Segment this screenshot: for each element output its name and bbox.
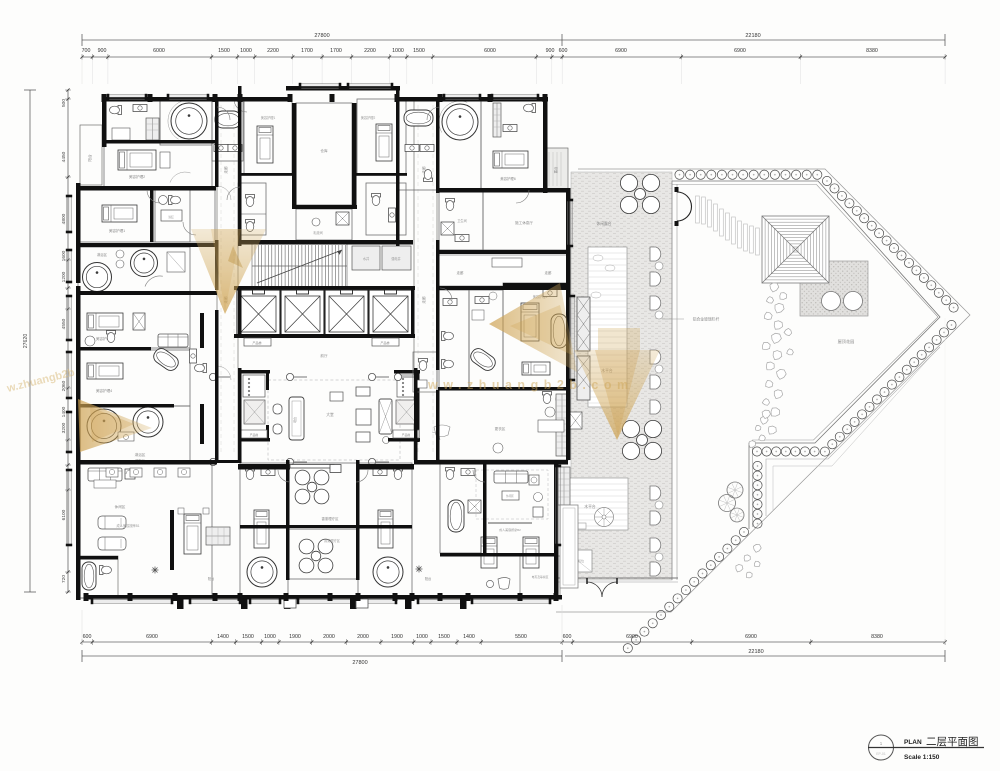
svg-text:22180: 22180: [745, 33, 760, 39]
svg-text:美容护理4: 美容护理4: [96, 388, 112, 393]
svg-text:美容护理1: 美容护理1: [109, 228, 125, 233]
svg-text:Scale 1:150: Scale 1:150: [904, 754, 940, 761]
svg-text:5500: 5500: [515, 634, 527, 640]
svg-text:27620: 27620: [23, 334, 29, 349]
svg-text:8380: 8380: [871, 634, 883, 640]
svg-text:600: 600: [563, 634, 572, 640]
svg-text:6000: 6000: [153, 48, 165, 54]
svg-text:走廊: 走廊: [457, 270, 464, 275]
svg-text:产品梯: 产品梯: [402, 433, 411, 437]
svg-text:1500: 1500: [218, 48, 230, 54]
svg-text:EP-01: EP-01: [876, 752, 886, 756]
svg-text:1400: 1400: [217, 634, 229, 640]
svg-text:6900: 6900: [615, 48, 627, 54]
svg-text:6900: 6900: [146, 634, 158, 640]
svg-text:阳台: 阳台: [87, 154, 92, 162]
svg-text:露台: 露台: [553, 166, 558, 173]
svg-text:1000: 1000: [240, 48, 252, 54]
svg-text:大堂: 大堂: [326, 412, 334, 417]
svg-text:铝合金玻璃栏杆: 铝合金玻璃栏杆: [693, 317, 720, 322]
svg-text:仓库: 仓库: [320, 148, 328, 153]
svg-text:1000: 1000: [264, 634, 276, 640]
svg-text:走廊: 走廊: [223, 166, 228, 174]
svg-text:产品梯: 产品梯: [252, 340, 261, 345]
svg-text:4450: 4450: [61, 151, 67, 162]
svg-text:屋顶花园: 屋顶花园: [838, 338, 855, 345]
svg-text:1700: 1700: [301, 48, 313, 54]
svg-text:2200: 2200: [364, 48, 376, 54]
svg-text:6000: 6000: [484, 48, 496, 54]
svg-text:香薰理疗区: 香薰理疗区: [324, 538, 341, 543]
svg-text:3200: 3200: [61, 422, 67, 433]
svg-text:木平台: 木平台: [584, 504, 596, 509]
svg-text:22180: 22180: [748, 649, 763, 655]
svg-text:成人美容按摩B2: 成人美容按摩B2: [499, 527, 521, 532]
svg-text:1400: 1400: [463, 634, 475, 640]
svg-text:强电井: 强电井: [391, 256, 401, 261]
svg-text:ww.zhuangb2b.com: ww.zhuangb2b.com: [427, 378, 634, 392]
svg-text:1900: 1900: [289, 634, 301, 640]
svg-text:6100: 6100: [61, 509, 67, 520]
svg-text:吧台: 吧台: [292, 417, 297, 423]
svg-text:6900: 6900: [745, 634, 757, 640]
svg-text:700: 700: [82, 48, 91, 54]
svg-text:浴缸: 浴缸: [168, 215, 174, 219]
svg-text:4800: 4800: [61, 213, 67, 224]
svg-text:乳液间: 乳液间: [313, 230, 323, 235]
svg-text:1200: 1200: [61, 271, 67, 282]
svg-text:PLAN: PLAN: [904, 739, 922, 746]
svg-text:阳台: 阳台: [425, 576, 431, 581]
svg-text:720: 720: [61, 575, 67, 583]
svg-text:休闲区: 休闲区: [115, 504, 126, 509]
svg-text:1500: 1500: [438, 634, 450, 640]
svg-text:香薰理疗区: 香薰理疗区: [322, 516, 340, 521]
svg-text:1900: 1900: [391, 634, 403, 640]
svg-text:6900: 6900: [626, 634, 638, 640]
svg-text:产品梯: 产品梯: [380, 340, 389, 345]
svg-text:电有及等候区: 电有及等候区: [532, 575, 549, 579]
svg-text:2200: 2200: [267, 48, 279, 54]
svg-text:500: 500: [61, 99, 67, 107]
svg-text:27800: 27800: [352, 660, 367, 666]
svg-text:美容护理1: 美容护理1: [261, 115, 276, 120]
svg-text:6900: 6900: [734, 48, 746, 54]
svg-text:2000: 2000: [323, 634, 335, 640]
svg-text:淋浴区: 淋浴区: [97, 252, 108, 257]
svg-text:1500: 1500: [242, 634, 254, 640]
svg-text:休闲区: 休闲区: [506, 494, 514, 498]
svg-text:600: 600: [559, 48, 568, 54]
svg-text:前厅: 前厅: [320, 353, 328, 358]
svg-text:美容护理6: 美容护理6: [500, 176, 516, 181]
svg-text:更衣区: 更衣区: [495, 426, 506, 431]
svg-text:900: 900: [546, 48, 555, 54]
svg-text:2060: 2060: [61, 380, 67, 391]
svg-text:1500: 1500: [413, 48, 425, 54]
svg-text:1000: 1000: [392, 48, 404, 54]
svg-text:美容护理2: 美容护理2: [129, 174, 145, 179]
svg-text:走廊: 走廊: [421, 296, 426, 304]
svg-text:淋浴区: 淋浴区: [135, 452, 146, 457]
svg-text:1600: 1600: [61, 250, 67, 261]
svg-text:走廊: 走廊: [545, 270, 552, 275]
svg-text:1000: 1000: [416, 634, 428, 640]
svg-text:4550: 4550: [61, 318, 67, 329]
svg-text:卫生间: 卫生间: [457, 218, 467, 223]
svg-text:成人美容按摩B1: 成人美容按摩B1: [116, 523, 139, 528]
svg-text:600: 600: [83, 634, 92, 640]
svg-text:27800: 27800: [314, 33, 329, 39]
svg-text:8380: 8380: [866, 48, 878, 54]
svg-text:阳台: 阳台: [208, 576, 214, 581]
svg-text:休闲露台: 休闲露台: [596, 221, 611, 226]
svg-text:二层平面图: 二层平面图: [926, 736, 979, 748]
svg-text:施工休息厅: 施工休息厅: [515, 220, 533, 225]
svg-text:900: 900: [98, 48, 107, 54]
svg-text:1700: 1700: [330, 48, 342, 54]
svg-text:美容护理2: 美容护理2: [361, 115, 376, 120]
svg-text:产品梯: 产品梯: [250, 433, 259, 437]
svg-text:2000: 2000: [357, 634, 369, 640]
svg-text:水井: 水井: [363, 256, 369, 261]
